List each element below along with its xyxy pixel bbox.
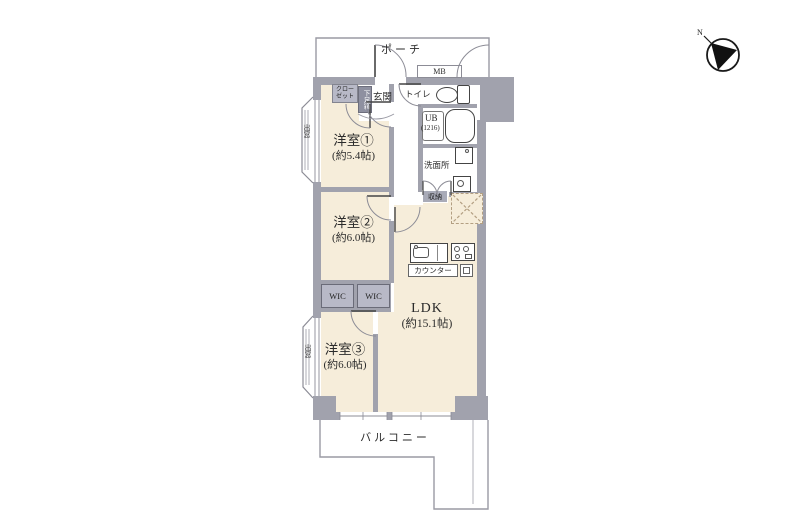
stove-burner-icon [455, 254, 460, 259]
balcony-label-wrap: バルコニー [320, 429, 470, 444]
wall-room1-room2 [318, 187, 389, 192]
room1-label: 洋室① [333, 133, 374, 149]
room1-label-wrap: 洋室① (約5.4帖) [318, 131, 389, 165]
wall-left-a [313, 77, 321, 102]
room3-label-wrap: 洋室③ (約6.0帖) [310, 340, 380, 374]
stove-burner-icon [463, 246, 469, 252]
shoebox-label: 下足箱 [360, 90, 370, 110]
bay-window-top-panes [305, 110, 308, 170]
column-top-right [480, 77, 514, 122]
counter-end-inner [463, 267, 470, 274]
wall-toilet-bath [423, 104, 477, 108]
bay-window-top [302, 97, 313, 183]
hall-floor [394, 85, 418, 205]
toilet-tank-icon [457, 85, 470, 104]
column-bottom-right [455, 396, 488, 420]
ldk-label-wrap: LDK (約15.1帖) [379, 298, 475, 334]
wall-right [477, 120, 486, 400]
kitchen-sink-divider [437, 245, 438, 261]
room3-size-label: (約6.0帖) [323, 359, 366, 372]
washing-machine-icon [455, 147, 473, 164]
wash-basin-bowl-icon [457, 180, 464, 187]
column-bottom-left [315, 396, 336, 420]
closet-box: クロー ゼット [332, 84, 358, 103]
compass-north-label: N [697, 28, 703, 37]
window-balcony-right [392, 412, 451, 420]
stove-grill-icon [465, 254, 472, 259]
storage-label: 収納 [428, 192, 442, 202]
bath-label: UB [425, 113, 438, 123]
washroom-label: 洗面所 [424, 159, 450, 171]
ldk-size-label: (約15.1帖) [402, 318, 453, 332]
room2-label-wrap: 洋室② (約6.0帖) [318, 213, 389, 247]
mb-label: MB [433, 67, 445, 76]
wall-top-right [406, 77, 482, 85]
room3-label: 洋室③ [325, 342, 366, 358]
room2-label: 洋室② [333, 215, 374, 231]
bathtub-icon [445, 109, 475, 143]
washing-machine-knob-icon [465, 149, 469, 153]
counter-box: カウンター [408, 264, 458, 277]
counter-label: カウンター [414, 265, 452, 276]
window-balcony-left [340, 412, 387, 420]
bay-window-top-label: 出窓 [302, 124, 312, 138]
shoebox-box: 下足箱 [358, 86, 372, 113]
genkan-label: 玄関 [373, 89, 392, 103]
toilet-bowl-icon [436, 87, 458, 103]
storage-box: 収納 [422, 190, 448, 203]
room2-size-label: (約6.0帖) [332, 232, 375, 245]
mb-label-wrap: MB [417, 65, 462, 78]
closet-label: ゼット [336, 94, 354, 100]
room1-size-label: (約5.4帖) [332, 150, 375, 163]
porch-label-wrap: ポーチ [315, 42, 489, 56]
stove-burner-icon [454, 246, 460, 252]
porch-label: ポーチ [381, 41, 423, 57]
ldk-label: LDK [411, 301, 443, 318]
bay-window-bottom-label: 出窓 [303, 344, 313, 358]
compass-icon [704, 36, 739, 71]
kitchen-faucet-icon [414, 245, 418, 249]
wall-room2-right [389, 221, 394, 283]
wic1-label: WIC [329, 291, 346, 301]
toilet-label: トイレ [405, 88, 431, 100]
wic1-box: WIC [321, 284, 354, 308]
balcony-label: バルコニー [360, 429, 430, 445]
wall-room1-right-b [389, 127, 394, 197]
floor-plan: 収納 カウンター クロー ゼット 下足箱 WIC WIC [0, 0, 800, 531]
bath-size-label: (1216) [421, 124, 440, 132]
refrigerator-space [451, 193, 483, 224]
